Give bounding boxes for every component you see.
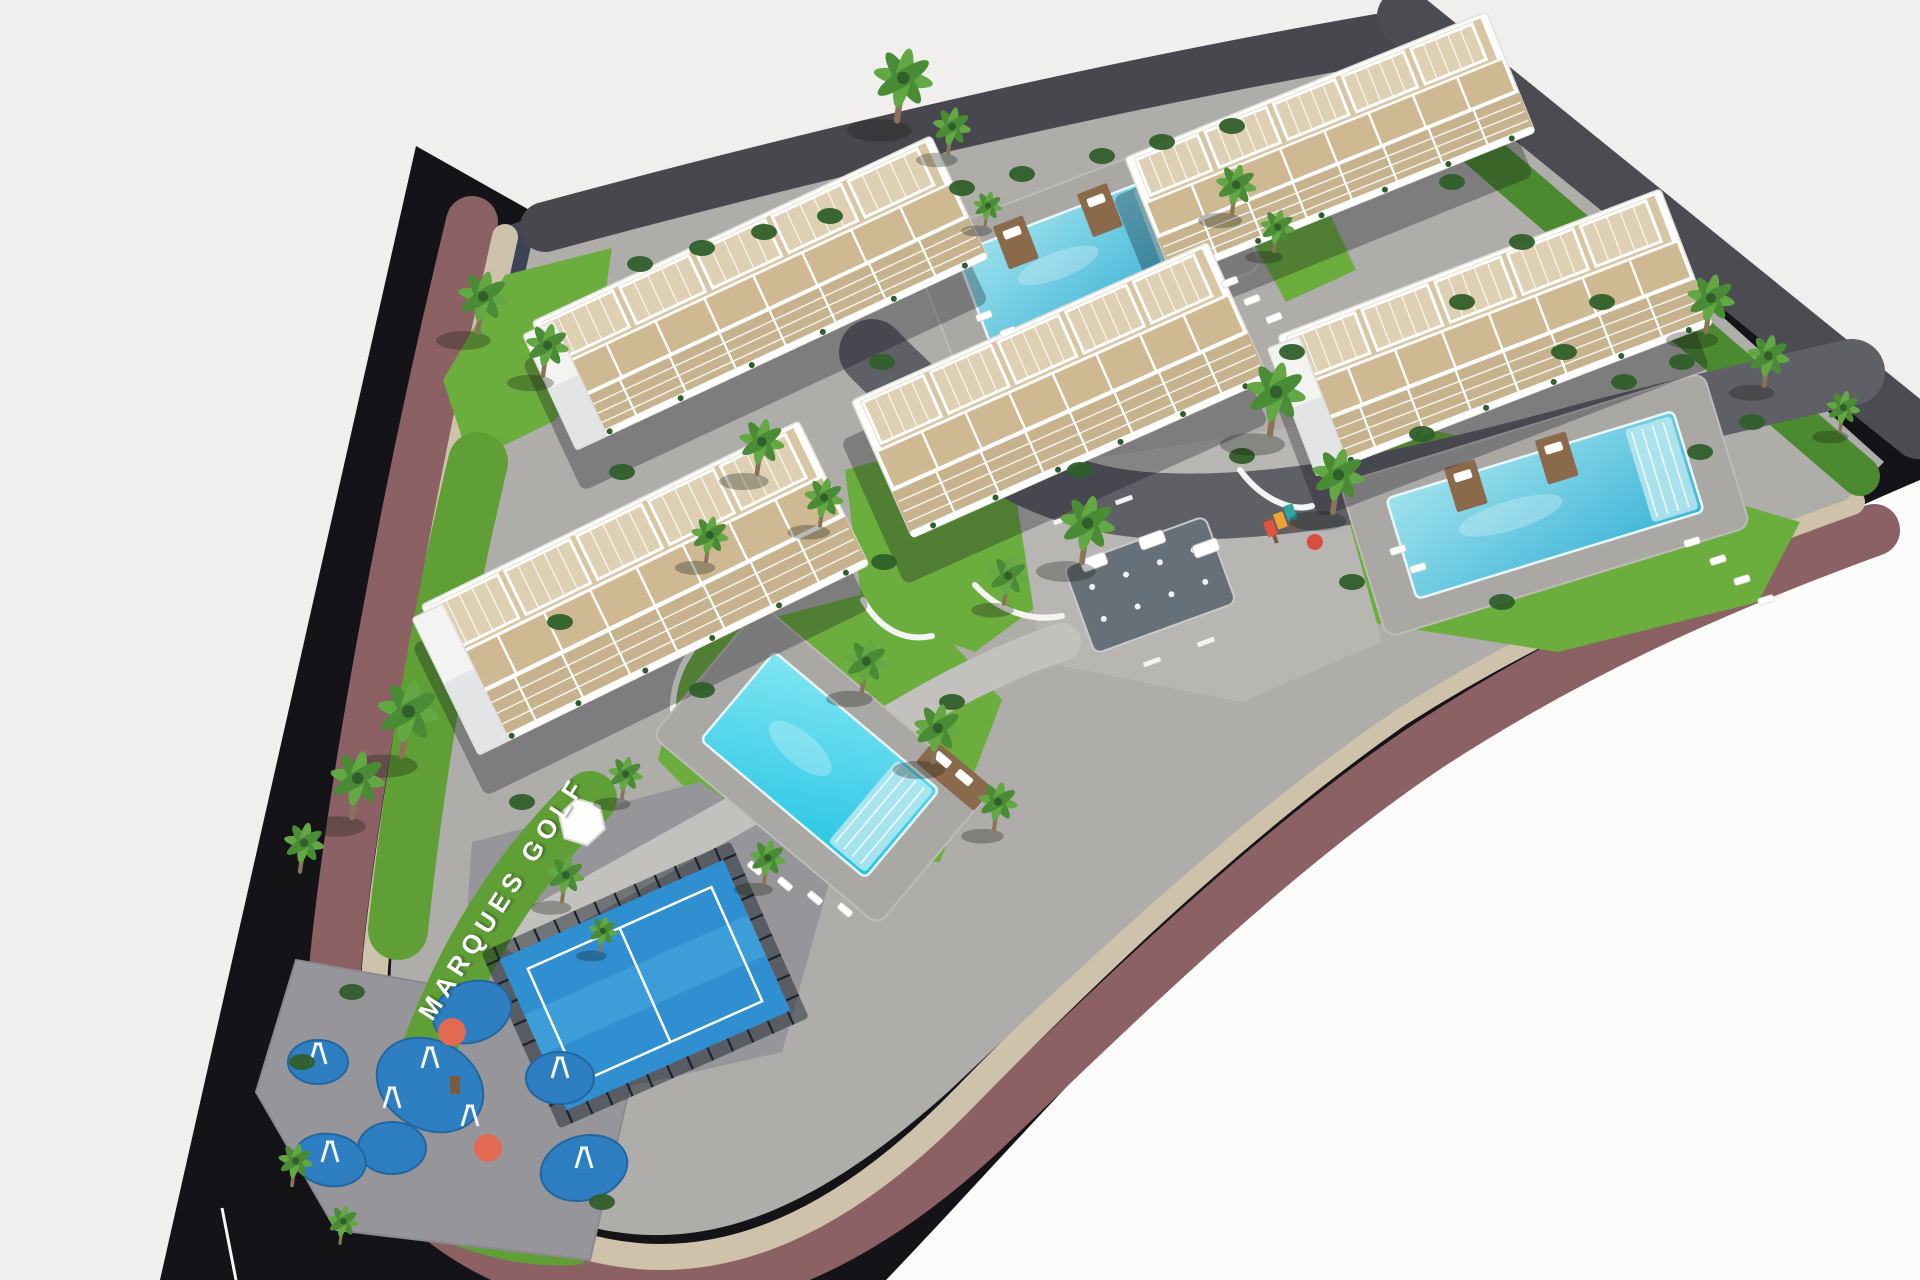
shrub — [949, 180, 975, 196]
palm-shadow — [893, 761, 945, 779]
shrub — [689, 682, 715, 698]
shrub — [1589, 294, 1615, 310]
palm-shadow — [1729, 385, 1775, 401]
palm-shadow — [593, 798, 630, 811]
palm-shadow — [1198, 213, 1242, 228]
playground-orange-circle — [474, 1134, 502, 1162]
shrub — [817, 208, 843, 224]
palm-shadow — [507, 375, 554, 391]
shrub — [1067, 462, 1093, 478]
palm-shadow — [961, 829, 1004, 844]
palm-shadow — [916, 153, 958, 167]
shrub — [871, 554, 897, 570]
palm-shadow — [1289, 511, 1346, 531]
palm-shadow — [1036, 561, 1096, 582]
shrub — [751, 224, 777, 240]
palm-shadow — [961, 226, 992, 237]
palm-shadow — [1666, 331, 1718, 349]
shrub — [339, 984, 365, 1000]
shrub — [1611, 374, 1637, 390]
palm-shadow — [826, 691, 873, 707]
palm-shadow — [675, 561, 716, 575]
shrub — [1509, 234, 1535, 250]
shrub — [547, 614, 573, 630]
aerial-render: MARQUES GOLF — [0, 0, 1920, 1280]
shrub — [1339, 574, 1365, 590]
palm-shadow — [1245, 251, 1282, 264]
palm-shadow — [1220, 433, 1285, 456]
shrub — [609, 464, 635, 480]
shrub — [289, 1054, 315, 1070]
palm-shadow — [576, 951, 607, 962]
shrub — [1489, 594, 1515, 610]
site-plan-svg — [0, 0, 1920, 1280]
palm-shadow — [263, 1185, 300, 1198]
shrub — [689, 240, 715, 256]
shrub — [1279, 344, 1305, 360]
shrub — [1219, 118, 1245, 134]
palm-shadow — [847, 119, 912, 142]
shrub — [1551, 344, 1577, 360]
shrub — [509, 794, 535, 810]
shrub — [1449, 294, 1475, 310]
shrub — [1669, 354, 1695, 370]
shrub — [1089, 148, 1115, 164]
palm-shadow — [314, 1243, 348, 1255]
shrub — [589, 1194, 615, 1210]
palm-shadow — [1812, 431, 1848, 444]
shrub — [1739, 414, 1765, 430]
shrub — [869, 354, 895, 370]
playground-orange-circle — [438, 1018, 466, 1046]
shrub — [1149, 134, 1175, 150]
palm-shadow — [719, 473, 768, 490]
palm-shadow — [734, 883, 773, 897]
shrub — [1009, 166, 1035, 182]
palm-shadow — [436, 331, 491, 350]
playground-rubber-pad — [358, 1122, 426, 1174]
palm-shadow — [787, 525, 830, 540]
play-tower — [450, 1076, 460, 1094]
shrub — [1409, 426, 1435, 442]
shrub — [627, 256, 653, 272]
palm-shadow — [266, 871, 310, 886]
palm-shadow — [971, 603, 1014, 618]
shrub — [1439, 174, 1465, 190]
playground-rubber-pad — [526, 1052, 594, 1104]
palm-shadow — [531, 901, 572, 915]
shrub — [1687, 444, 1713, 460]
